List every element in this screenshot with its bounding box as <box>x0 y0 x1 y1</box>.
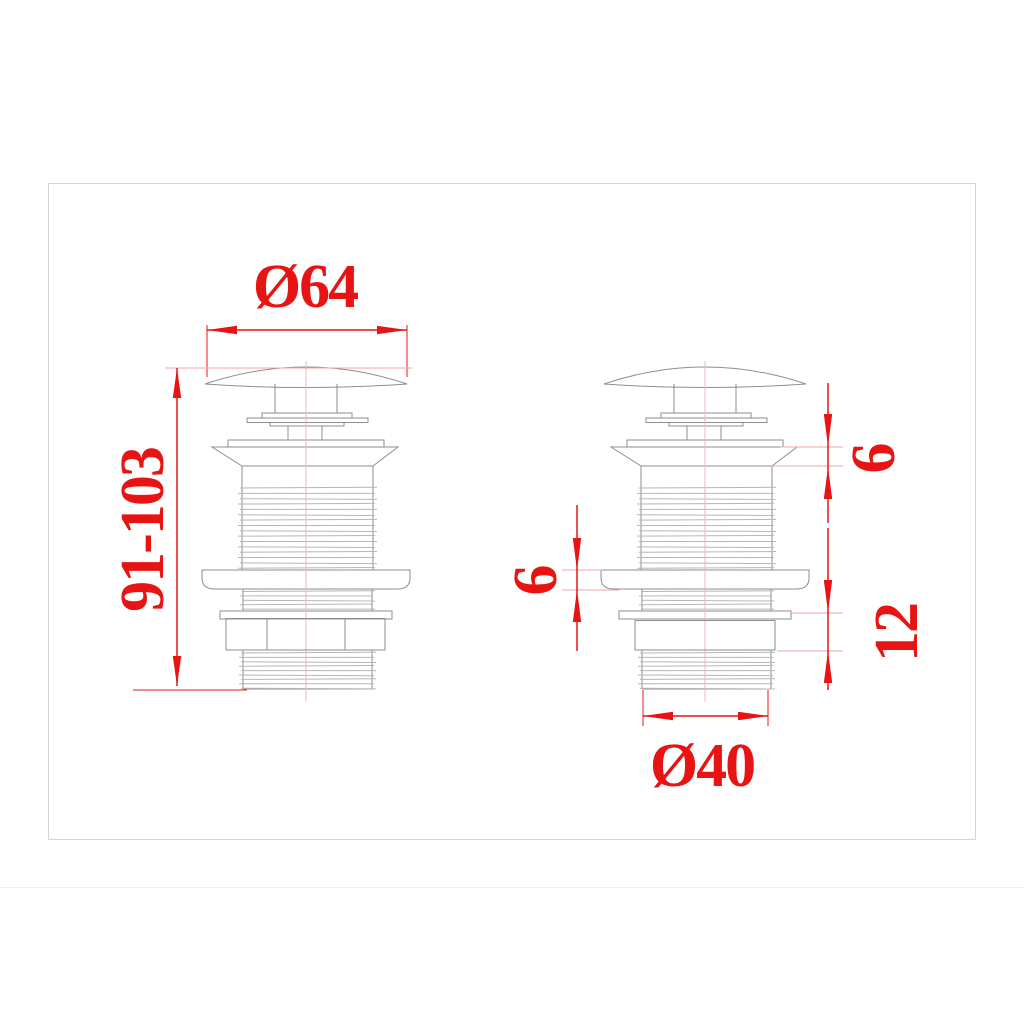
dimension-cap-diameter <box>207 325 407 377</box>
left-view-fixture <box>202 361 410 702</box>
label-thread-diameter: Ø40 <box>650 735 754 797</box>
label-seal-height: 6 <box>505 567 567 596</box>
dimension-flange-height <box>771 383 843 523</box>
label-cap-diameter: Ø64 <box>253 256 357 318</box>
label-flange-height: 6 <box>843 445 905 474</box>
label-installation-height: 91-103 <box>112 448 174 612</box>
label-nut-height: 12 <box>866 604 928 662</box>
technical-drawing-page: Ø64 91-103 6 6 12 Ø40 <box>0 0 1024 1024</box>
dimension-seal-height <box>562 505 619 651</box>
dimension-nut-height <box>777 528 843 690</box>
